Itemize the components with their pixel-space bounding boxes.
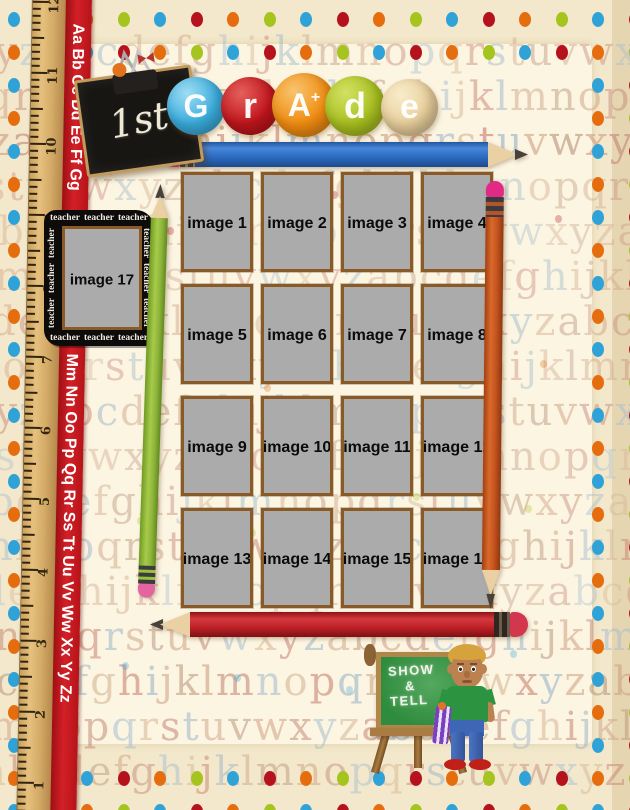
polka-dot (519, 45, 531, 60)
ruler-tick (23, 505, 31, 507)
ruler-tick (31, 107, 43, 109)
ruler-tick (28, 270, 36, 272)
photo-slot-6[interactable]: image 6 (261, 284, 333, 384)
alphabet-letter: g (509, 704, 537, 750)
teacher-photo-frame: teacherteacherteacher teacherteacherteac… (44, 210, 154, 346)
alphabet-letter: x (289, 704, 314, 750)
alphabet-letter: r (104, 614, 125, 660)
alphabet-letter: y (314, 704, 339, 750)
ruler-tick (20, 696, 28, 698)
polka-dot (592, 474, 604, 489)
alphabet-letter: m (216, 659, 256, 705)
polka-dot (592, 639, 604, 654)
alphabet-letter: j (455, 74, 469, 120)
alphabet-letter: x (615, 389, 630, 435)
toy-head (438, 702, 446, 710)
photo-slot-label: image 9 (187, 439, 247, 457)
pencil-ferrule (138, 565, 156, 584)
alphabet-letter: r (609, 164, 630, 210)
ruler-number: 10 (44, 138, 59, 156)
boy-eye (458, 666, 463, 672)
ruler-tick (20, 654, 28, 656)
alphabet-letter: h (522, 524, 550, 570)
grade-letter: e (400, 88, 419, 127)
alphabet-letter: p (84, 704, 112, 750)
polka-dot (592, 111, 604, 126)
boy-leg (451, 732, 465, 762)
ruler-tick (24, 476, 32, 478)
alphabet-letter: m (256, 749, 296, 795)
alphabet-letter: o (538, 434, 564, 480)
ruler-tick (18, 789, 26, 791)
photo-slot-label: image 14 (263, 551, 331, 569)
ruler-tick (26, 384, 34, 386)
ruler-tick (22, 562, 30, 564)
confetti-dot (510, 650, 517, 658)
ruler-tick (19, 746, 31, 748)
grade-letter-plus: + (311, 89, 320, 107)
ruler-tick (32, 50, 40, 52)
alphabet-letter: x (535, 479, 560, 525)
polka-dot (592, 45, 604, 60)
ruler-tick (30, 171, 38, 173)
ruler-number: 6 (39, 421, 54, 439)
ruler-tick (24, 462, 36, 464)
ruler-number: 2 (34, 705, 49, 723)
polka-dot (191, 45, 203, 60)
confetti-dot (346, 686, 353, 694)
teacher-word: teacher (47, 263, 57, 293)
alphabet-letter: w (499, 479, 535, 525)
photo-slot-11[interactable]: image 11 (341, 396, 413, 496)
polka-dot (191, 771, 203, 786)
ruler-tick (28, 263, 36, 265)
polka-dot (264, 771, 276, 786)
ruler-tick (23, 533, 35, 535)
boy-shoe (444, 759, 466, 770)
ruler-tick (23, 540, 31, 542)
confetti-dot (167, 227, 174, 235)
ruler-tick (25, 405, 33, 407)
polka-dot (154, 12, 166, 27)
confetti-dot (122, 662, 129, 670)
ruler-tick (27, 299, 35, 301)
teacher-word: teacher (84, 333, 114, 343)
pencil-wood-tip (151, 196, 169, 219)
alphabet-letter: j (160, 659, 174, 705)
alphabet-letter: x (615, 29, 630, 75)
polka-dot (592, 804, 604, 810)
alphabet-letter: w (253, 704, 289, 750)
ruler-tick (28, 256, 36, 258)
alphabet-letter: k (559, 614, 585, 660)
polka-dot (592, 12, 604, 27)
polka-dot (337, 45, 349, 60)
alphabet-letter: v (228, 704, 253, 750)
teacher-word: teacher (84, 213, 114, 223)
alphabet-letter: u (201, 704, 229, 750)
alphabet-letter: q (111, 704, 139, 750)
photo-slot-15[interactable]: image 15 (341, 508, 413, 608)
ruler-tick (18, 767, 26, 769)
teacher-words-left: teacherteacherteacher (45, 226, 59, 330)
pencil-graphite-tip (152, 184, 169, 199)
alphabet-letter: k (275, 29, 301, 75)
ruler-tick (25, 420, 33, 422)
polka-dot (446, 12, 458, 27)
teacher-word: teacher (50, 333, 80, 343)
alphabet-letter: v (494, 749, 519, 795)
alphabet-letter: g (130, 749, 158, 795)
ruler-tick (28, 235, 36, 237)
boy-nose (464, 671, 470, 678)
ruler-tick (29, 228, 37, 230)
alphabet-letter: i (565, 704, 580, 750)
polka-dot (337, 12, 349, 27)
alphabet-letter: k (599, 254, 625, 300)
polka-dot (373, 45, 385, 60)
ruler-tick (18, 796, 26, 798)
photo-slot-10[interactable]: image 10 (261, 396, 333, 496)
ruler-tick (31, 114, 39, 116)
alphabet-letter: k (175, 659, 201, 705)
polka-dot (410, 12, 422, 27)
alphabet-letter: p (564, 434, 592, 480)
blue-pencil (162, 142, 528, 167)
pencil-graphite-tip (482, 594, 500, 609)
photo-slot-label: image 6 (267, 327, 327, 345)
toy-figure (432, 705, 452, 744)
photo-grid: image 1image 2image 3image 4image 5image… (181, 172, 493, 608)
alphabet-letter: l (565, 344, 580, 390)
alphabet-letter: w (549, 119, 585, 165)
alphabet-letter: l (161, 569, 176, 615)
ruler-tick (23, 519, 31, 521)
ruler-tick (32, 29, 40, 31)
alphabet-letter: g (90, 659, 118, 705)
ruler-tick (21, 597, 29, 599)
polka-dot (154, 804, 166, 810)
polka-dot (592, 738, 604, 753)
polka-dot (154, 771, 166, 786)
alphabet-letter: g (514, 254, 542, 300)
alphabet-letter: y (610, 119, 630, 165)
alphabet-letter: m (316, 29, 356, 75)
ruler-tick (17, 803, 25, 805)
polka-dot (592, 408, 604, 423)
ruler-tick (21, 618, 29, 620)
alphabet-letter: y (510, 299, 535, 345)
polka-dot (483, 45, 495, 60)
teacher-word: teacher (118, 213, 148, 223)
alphabet-letter: i (510, 344, 525, 390)
ruler-tick (24, 455, 32, 457)
confetti-dot (540, 360, 547, 368)
alphabet-letter: o (528, 164, 554, 210)
polka-dot (483, 804, 495, 810)
alphabet-letter: l (605, 524, 620, 570)
photo-slot-17[interactable]: image 17 (62, 226, 142, 330)
alphabet-letter: n (500, 164, 528, 210)
polka-dot (556, 45, 568, 60)
photo-slot-3[interactable]: image 3 (341, 172, 413, 272)
alphabet-letter: t (509, 389, 527, 435)
photo-slot-label: image 12 (423, 439, 491, 457)
photo-slot-5[interactable]: image 5 (181, 284, 253, 384)
alphabet-letter: t (127, 344, 145, 390)
ruler-tick (19, 739, 27, 741)
ruler-tick (30, 164, 38, 166)
pencil-eraser (486, 181, 504, 197)
polka-dot (592, 177, 604, 192)
pencil-graphite-tip (515, 142, 528, 167)
alphabet-letter: i (570, 254, 585, 300)
pencil-eraser (510, 612, 528, 637)
alphabet-letter: e (88, 749, 114, 795)
alphabet-letter: t (182, 704, 200, 750)
polka-dot (592, 771, 604, 786)
photo-slot-2[interactable]: image 2 (261, 172, 333, 272)
ruler-tick (28, 278, 36, 280)
ruler-tick (31, 100, 39, 102)
polka-dot (592, 144, 604, 159)
alphabet-letter: m (600, 614, 630, 660)
boy-bangs (450, 648, 484, 660)
alphabet-letter: a (557, 299, 583, 345)
alphabet-letter: q (96, 524, 124, 570)
polka-dot (592, 672, 604, 687)
ruler-tick (20, 689, 28, 691)
alphabet-letter: i (246, 29, 261, 75)
ruler-tick (32, 58, 40, 60)
ruler-tick (29, 185, 37, 187)
ruler-tick (31, 86, 39, 88)
ruler-tick (26, 334, 34, 336)
ruler-tick (21, 633, 29, 635)
ruler-tick (23, 512, 31, 514)
alphabet-letter: c (601, 569, 625, 615)
photo-slot-4[interactable]: image 4 (421, 172, 493, 272)
polka-dot (592, 441, 604, 456)
ruler-tick (26, 377, 34, 379)
polka-dot (300, 12, 312, 27)
ruler-tick (29, 207, 37, 209)
photo-slot-label: image 8 (427, 327, 487, 345)
polka-dot (410, 804, 422, 810)
alphabet-letter: i (146, 659, 161, 705)
photo-slot-label: image 3 (347, 215, 407, 233)
polka-dot (556, 771, 568, 786)
ruler-tick (20, 668, 28, 670)
polka-dot (118, 804, 130, 810)
polka-dot (446, 45, 458, 60)
ruler-tick (31, 121, 39, 123)
photo-slot-label: image 17 (70, 271, 134, 288)
pencil-eraser (138, 583, 155, 598)
ruler-tick (24, 469, 32, 471)
boy-eyebrow (470, 663, 477, 665)
ruler-tick (32, 65, 40, 67)
alphabet-letter: s (125, 614, 148, 660)
photo-slot-13[interactable]: image 13 (181, 508, 253, 608)
teacher-word: teacher (47, 298, 57, 328)
photo-slot-8[interactable]: image 8 (421, 284, 493, 384)
ruler-tick (33, 8, 41, 10)
ruler-tick (28, 249, 40, 251)
photo-slot-14[interactable]: image 14 (261, 508, 333, 608)
grade-letter: A (288, 87, 311, 124)
ruler-tick (20, 661, 28, 663)
ruler-tick (22, 590, 30, 592)
ruler-tick (18, 760, 26, 762)
photo-slot-7[interactable]: image 7 (341, 284, 413, 384)
polka-dot (410, 771, 422, 786)
pencil-body (190, 612, 494, 637)
ruler-tick (26, 370, 34, 372)
grade-circle-d: d (325, 76, 385, 136)
ruler-tick (28, 242, 36, 244)
ruler-number: 5 (38, 492, 53, 510)
polka-dot (227, 771, 239, 786)
boy-eye (471, 666, 476, 672)
ruler-tick (31, 79, 39, 81)
polka-dot (373, 804, 385, 810)
ruler-tick (30, 157, 38, 159)
ruler-tick (20, 675, 32, 677)
pencil-wood-tip (488, 142, 518, 167)
ruler-tick (19, 704, 27, 706)
ruler-tick (32, 43, 40, 45)
polka-dot (373, 12, 385, 27)
polka-dot (118, 771, 130, 786)
ruler-tick (20, 682, 28, 684)
polka-dot (592, 276, 604, 291)
alphabet-letter: v (524, 119, 549, 165)
boy-figure (436, 644, 498, 772)
polka-dot (300, 45, 312, 60)
ruler-tick (29, 221, 37, 223)
alphabet-letter: b (613, 659, 630, 705)
ruler-tick (29, 178, 41, 180)
polka-dot (337, 771, 349, 786)
polka-dot (592, 243, 604, 258)
photo-slot-1[interactable]: image 1 (181, 172, 253, 272)
alphabet-letter: u (527, 389, 555, 435)
polka-dot (592, 540, 604, 555)
ruler-tick (30, 136, 38, 138)
alphabet-letter: l (625, 254, 630, 300)
alphabet-letter: i (530, 614, 545, 660)
photo-slot-label: image 4 (427, 215, 487, 233)
alphabet-letter: w (88, 434, 124, 480)
ruler-tick (26, 341, 34, 343)
boy-shirt (446, 686, 488, 722)
ruler-tick (24, 483, 32, 485)
pencil-ferrule (486, 197, 504, 217)
polka-dot (118, 12, 130, 27)
polka-dot (191, 12, 203, 27)
polka-dot (556, 12, 568, 27)
alphabet-letter: q (337, 659, 365, 705)
alphabet-letter: a (607, 479, 630, 525)
ruler-tick (21, 625, 29, 627)
ruler-tick (18, 774, 26, 776)
ruler-tick (32, 36, 44, 38)
alphabet-letter: g (110, 479, 138, 525)
polka-dot (446, 771, 458, 786)
photo-slot-label: image 10 (263, 439, 331, 457)
alphabet-letter: o (384, 29, 410, 75)
photo-slot-label: image 11 (343, 439, 411, 457)
polka-dot (592, 375, 604, 390)
photo-slot-label: image 2 (267, 215, 327, 233)
ruler-tick (25, 391, 37, 393)
polka-dot (483, 771, 495, 786)
grade-circle-r: r (221, 77, 279, 135)
ruler-tick (22, 547, 30, 549)
alphabet-letter: j (200, 749, 214, 795)
ruler-tick (25, 398, 33, 400)
teacher-word: teacher (50, 213, 80, 223)
polka-dot (227, 12, 239, 27)
alphabet-letter: y (500, 569, 525, 615)
easel-knob (364, 644, 376, 666)
ruler-number: 11 (46, 67, 61, 85)
photo-slot-label: image 7 (347, 327, 407, 345)
boy-leg (469, 732, 483, 762)
alphabet-letter: n (256, 659, 284, 705)
ruler-tick (19, 732, 27, 734)
pencil-body (195, 142, 488, 167)
alphabet-letter: r (139, 704, 160, 750)
polka-dot (519, 771, 531, 786)
polka-dot (483, 12, 495, 27)
scrapbook-page: xyzabcdefghijklmnopqrstuvwxyzabcdefghijk… (0, 0, 630, 810)
polka-dot (300, 771, 312, 786)
ruler-tick (20, 647, 28, 649)
ruler-tick (27, 313, 35, 315)
alphabet-letter: p (604, 74, 630, 120)
teacher-words-top: teacherteacherteacher (48, 212, 150, 224)
ruler-tick (30, 129, 38, 131)
polka-dot (410, 45, 422, 60)
teacher-word: teacher (118, 333, 148, 343)
ruler-tick (32, 22, 40, 24)
photo-slot-9[interactable]: image 9 (181, 396, 253, 496)
alphabet-letter: l (495, 74, 510, 120)
ruler-tick (25, 434, 33, 436)
alphabet-letter: h (542, 254, 570, 300)
alphabet-letter: s (105, 344, 128, 390)
polka-dot (519, 804, 531, 810)
grade-circle-e: e (381, 79, 438, 136)
alphabet-letter: l (241, 749, 256, 795)
photo-slot-label: image 5 (187, 327, 247, 345)
polka-dot (556, 804, 568, 810)
polka-dot (519, 12, 531, 27)
polka-dot (592, 342, 604, 357)
alphabet-letter: x (515, 659, 540, 705)
pencil-wood-tip (482, 570, 500, 596)
photo-slot-label: image 13 (183, 551, 251, 569)
polka-dot (227, 804, 239, 810)
polka-dot (592, 309, 604, 324)
alphabet-letter: p (554, 164, 582, 210)
ruler-number: 3 (35, 634, 50, 652)
alphabet-letter: n (510, 434, 538, 480)
ruler-tick (23, 526, 31, 528)
grade-letter: d (344, 85, 366, 127)
